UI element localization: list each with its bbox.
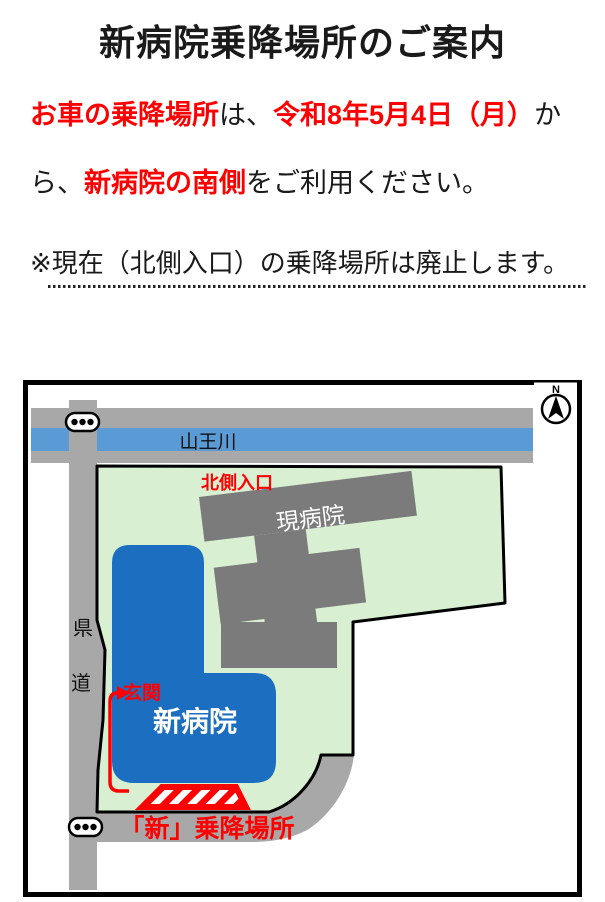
river-label: 山王川: [179, 431, 236, 453]
map-svg: 現病院 新病院 北側入口 玄関 「新」乗降場所 山王川 県 道: [23, 380, 582, 897]
new-stop-label: 「新」乗降場所: [119, 814, 294, 843]
plain-text: か: [534, 100, 561, 130]
pref-road-label-ken: 県: [73, 618, 93, 640]
current-hospital-right-wing: [307, 548, 366, 609]
notice-page: 新病院乗降場所のご案内 お車の乗降場所は、令和8年5月4日（月）か ら、新病院の…: [0, 0, 605, 902]
body-line-1: お車の乗降場所は、令和8年5月4日（月）か: [30, 99, 590, 132]
page-title: 新病院乗降場所のご案内: [0, 14, 605, 66]
pref-road-label-do: 道: [71, 672, 91, 695]
current-hospital-left-wing: [214, 562, 267, 624]
north-entrance-label: 北側入口: [201, 472, 273, 493]
current-hospital-south-block: [221, 622, 337, 668]
plain-text: ら、: [30, 168, 84, 198]
traffic-light-north-icon: [66, 413, 99, 431]
plain-text: は、: [219, 100, 273, 130]
highlight-pickup-location: お車の乗降場所: [30, 100, 219, 130]
note-line: ※現在（北側入口）の乗降場所は廃止します。: [30, 247, 590, 280]
body-line-2: ら、新病院の南側をご利用ください。: [30, 167, 590, 200]
highlight-south-side: 新病院の南側: [84, 168, 246, 198]
new-boarding-area: [142, 787, 246, 807]
river-sannogawa: [31, 428, 533, 451]
traffic-light-south-icon: [69, 818, 102, 836]
highlight-date: 令和8年5月4日（月）: [273, 100, 534, 130]
compass-north-icon: N: [534, 383, 577, 429]
site-map: 現病院 新病院 北側入口 玄関 「新」乗降場所 山王川 県 道: [23, 380, 582, 902]
wavy-underline: [48, 285, 588, 288]
new-hospital-label: 新病院: [153, 705, 237, 737]
plain-text: をご利用ください。: [246, 168, 489, 198]
entrance-label: 玄関: [123, 681, 161, 704]
